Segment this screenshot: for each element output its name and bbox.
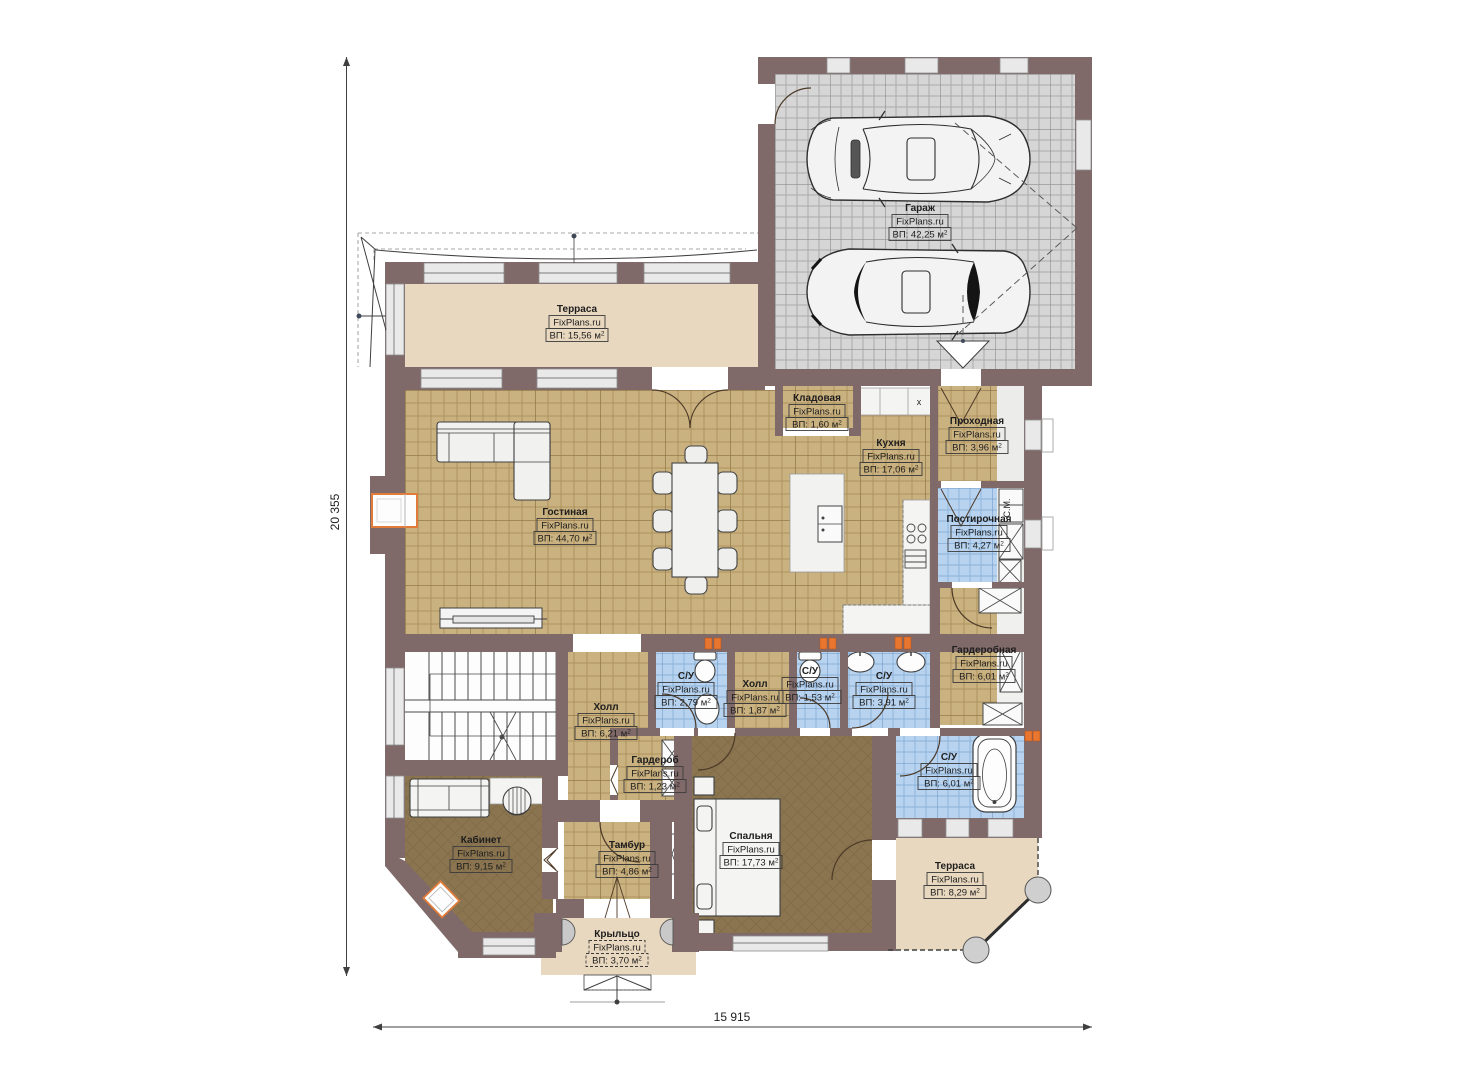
- svg-text:FixPlans.ru: FixPlans.ru: [925, 766, 973, 777]
- svg-text:ВП: 3,96 м2: ВП: 3,96 м2: [952, 443, 1002, 454]
- svg-text:FixPlans.ru: FixPlans.ru: [786, 680, 834, 691]
- svg-text:FixPlans.ru: FixPlans.ru: [662, 685, 710, 696]
- svg-text:ВП: 42,25 м2: ВП: 42,25 м2: [892, 230, 947, 241]
- svg-text:ВП: 1,53 м2: ВП: 1,53 м2: [785, 693, 835, 704]
- svg-text:ВП: 44,70 м2: ВП: 44,70 м2: [537, 534, 592, 545]
- svg-text:Гардероб: Гардероб: [631, 754, 678, 766]
- svg-text:Гардеробная: Гардеробная: [952, 644, 1017, 656]
- svg-text:Гостиная: Гостиная: [542, 507, 587, 518]
- svg-text:ВП: 15,56 м2: ВП: 15,56 м2: [549, 331, 604, 342]
- svg-text:ВП: 1,87 м2: ВП: 1,87 м2: [730, 706, 780, 717]
- svg-text:FixPlans.ru: FixPlans.ru: [731, 693, 779, 704]
- svg-text:FixPlans.ru: FixPlans.ru: [727, 845, 775, 856]
- svg-text:FixPlans.ru: FixPlans.ru: [582, 716, 630, 727]
- svg-text:ВП: 3,70 м2: ВП: 3,70 м2: [592, 956, 642, 967]
- svg-text:FixPlans.ru: FixPlans.ru: [960, 659, 1008, 670]
- svg-text:Гараж: Гараж: [905, 203, 936, 214]
- svg-text:С/У: С/У: [678, 671, 695, 682]
- svg-text:ВП: 17,73 м2: ВП: 17,73 м2: [723, 858, 778, 869]
- svg-text:Кухня: Кухня: [876, 438, 905, 449]
- svg-text:ВП: 6,01 м2: ВП: 6,01 м2: [959, 672, 1009, 683]
- svg-text:Холл: Холл: [742, 679, 767, 690]
- svg-text:Кабинет: Кабинет: [461, 834, 502, 846]
- svg-text:FixPlans.ru: FixPlans.ru: [457, 849, 505, 860]
- svg-text:ВП: 6,01 м2: ВП: 6,01 м2: [924, 779, 974, 790]
- svg-text:FixPlans.ru: FixPlans.ru: [793, 407, 841, 418]
- svg-text:ВП: 17,06 м2: ВП: 17,06 м2: [863, 465, 918, 476]
- svg-text:Холл: Холл: [593, 702, 618, 713]
- svg-text:Спальня: Спальня: [729, 831, 772, 842]
- svg-text:Проходная: Проходная: [950, 416, 1004, 427]
- svg-text:FixPlans.ru: FixPlans.ru: [541, 521, 589, 532]
- svg-text:FixPlans.ru: FixPlans.ru: [860, 685, 908, 696]
- svg-text:С/У: С/У: [876, 671, 893, 682]
- svg-text:15 915: 15 915: [714, 1010, 751, 1024]
- svg-text:ВП: 3,91 м2: ВП: 3,91 м2: [859, 698, 909, 709]
- svg-text:ВП: 4,27 м2: ВП: 4,27 м2: [954, 541, 1004, 552]
- svg-text:FixPlans.ru: FixPlans.ru: [553, 318, 601, 329]
- svg-text:Тамбур: Тамбур: [609, 839, 645, 851]
- svg-text:x: x: [917, 397, 922, 407]
- svg-text:С/У: С/У: [802, 666, 819, 677]
- svg-text:20 355: 20 355: [328, 493, 342, 530]
- svg-text:ВП: 2,79 м2: ВП: 2,79 м2: [661, 698, 711, 709]
- svg-text:Постирочная: Постирочная: [947, 514, 1012, 525]
- svg-text:Терраса: Терраса: [935, 861, 976, 872]
- svg-text:Кладовая: Кладовая: [793, 393, 841, 404]
- svg-text:ВП: 6,21 м2: ВП: 6,21 м2: [581, 729, 631, 740]
- svg-text:ВП: 1,23 м2: ВП: 1,23 м2: [630, 782, 680, 793]
- svg-text:FixPlans.ru: FixPlans.ru: [931, 875, 979, 886]
- svg-text:ВП: 9,15 м2: ВП: 9,15 м2: [456, 862, 506, 873]
- svg-text:ВП: 1,60 м2: ВП: 1,60 м2: [792, 420, 842, 431]
- svg-text:Крыльцо: Крыльцо: [594, 929, 640, 940]
- svg-text:FixPlans.ru: FixPlans.ru: [955, 528, 1003, 539]
- svg-text:FixPlans.ru: FixPlans.ru: [867, 452, 915, 463]
- svg-text:FixPlans.ru: FixPlans.ru: [603, 854, 651, 865]
- svg-text:FixPlans.ru: FixPlans.ru: [631, 769, 679, 780]
- svg-text:FixPlans.ru: FixPlans.ru: [593, 943, 641, 954]
- svg-text:С/У: С/У: [941, 752, 958, 763]
- svg-text:Терраса: Терраса: [557, 304, 598, 315]
- svg-text:FixPlans.ru: FixPlans.ru: [896, 217, 944, 228]
- svg-text:ВП: 4,86 м2: ВП: 4,86 м2: [602, 867, 652, 878]
- svg-text:ВП: 8,29 м2: ВП: 8,29 м2: [930, 888, 980, 899]
- svg-text:FixPlans.ru: FixPlans.ru: [953, 430, 1001, 441]
